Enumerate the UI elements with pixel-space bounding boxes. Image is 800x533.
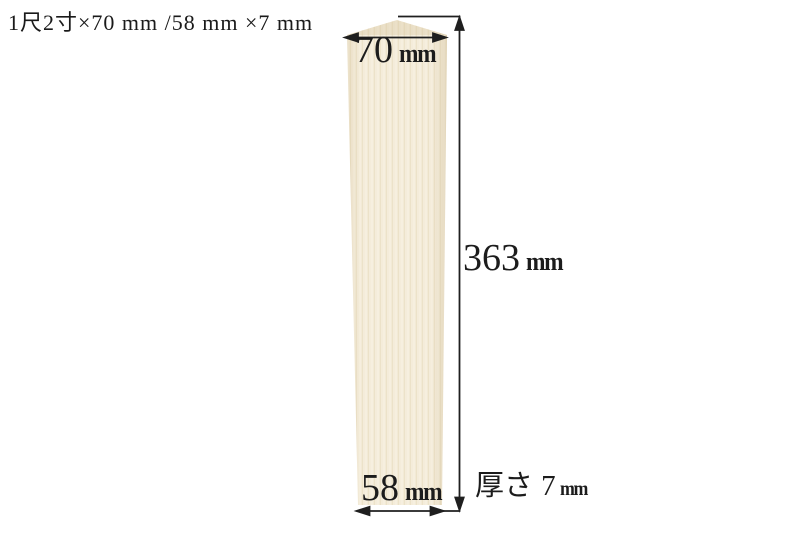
height-arrowhead-bottom (455, 498, 463, 511)
height-unit: mm (526, 248, 562, 275)
thickness-prefix: 厚さ (475, 470, 533, 502)
bottom-width-unit: mm (405, 478, 441, 505)
top-width-value: 70 (355, 29, 393, 71)
dimension-lines (0, 0, 800, 533)
bottom-width-value: 58 (361, 467, 399, 509)
height-value: 363 (463, 237, 520, 279)
bottom-width-label: 58mm (361, 469, 446, 507)
thickness-value: 7 (541, 470, 556, 502)
thickness-label: 厚さ7mm (475, 472, 591, 501)
top-width-unit: mm (399, 40, 435, 67)
bottom-width-arrowhead-right (431, 507, 444, 515)
top-width-label: 70mm (355, 31, 440, 69)
thickness-unit: mm (560, 479, 587, 499)
dimension-diagram: 1尺2寸×70 mm /58 mm ×7 mm 70mm 363mm 58mm (0, 0, 800, 533)
height-arrowhead-top (455, 18, 463, 31)
height-label: 363mm (463, 239, 567, 277)
